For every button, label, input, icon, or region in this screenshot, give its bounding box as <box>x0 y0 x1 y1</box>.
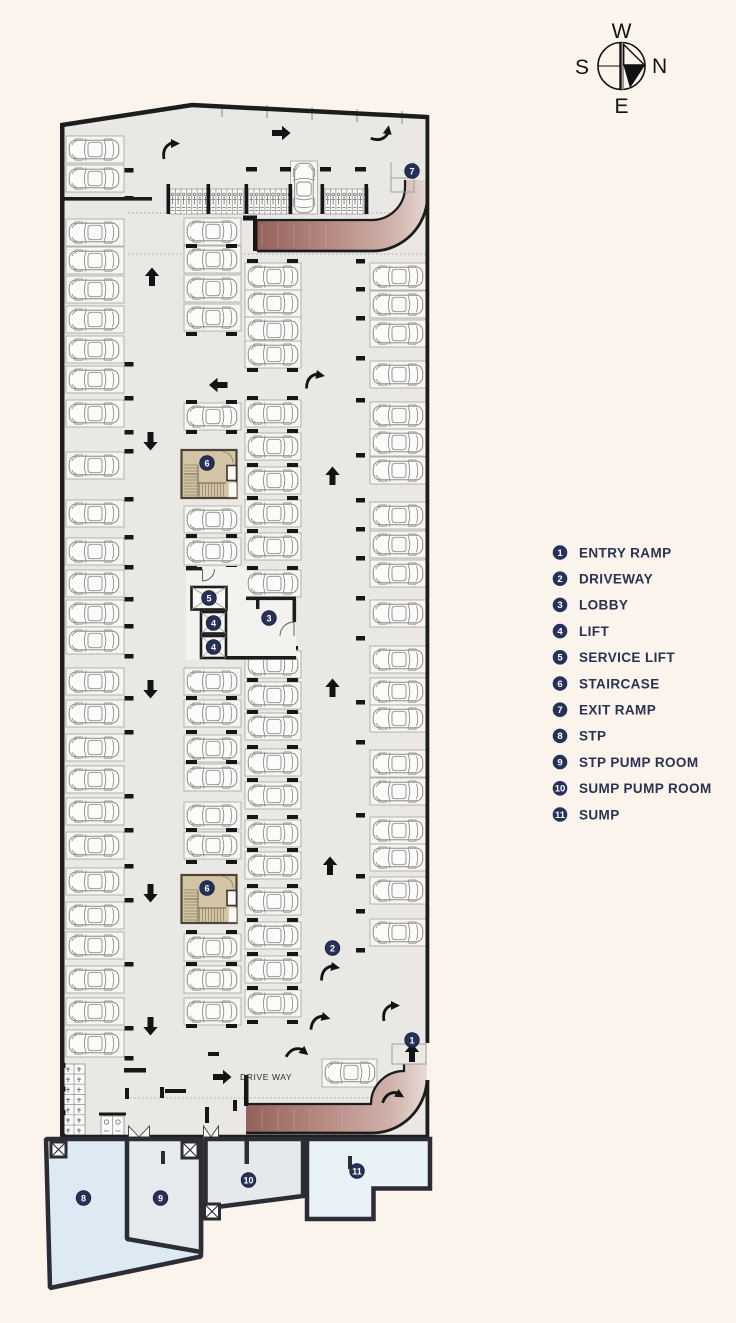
svg-text:2: 2 <box>557 574 562 585</box>
svg-text:9: 9 <box>158 1193 163 1203</box>
svg-text:6: 6 <box>557 679 562 690</box>
svg-text:STP: STP <box>579 729 606 744</box>
svg-text:4: 4 <box>557 626 563 637</box>
svg-text:STAIRCASE: STAIRCASE <box>579 676 660 691</box>
svg-text:11: 11 <box>352 1166 362 1176</box>
svg-text:W: W <box>612 20 632 43</box>
svg-text:SUMP: SUMP <box>579 807 620 822</box>
svg-text:9: 9 <box>557 757 562 768</box>
svg-text:STP PUMP ROOM: STP PUMP ROOM <box>579 755 698 770</box>
svg-text:E: E <box>614 95 628 118</box>
svg-text:8: 8 <box>81 1193 86 1203</box>
svg-text:5: 5 <box>206 593 211 603</box>
svg-text:6: 6 <box>204 458 209 468</box>
svg-text:4: 4 <box>211 618 216 628</box>
svg-text:DRIVE WAY: DRIVE WAY <box>240 1072 292 1082</box>
svg-text:6: 6 <box>204 883 209 893</box>
svg-text:LOBBY: LOBBY <box>579 598 628 613</box>
svg-text:EXIT RAMP: EXIT RAMP <box>579 703 656 718</box>
svg-text:N: N <box>652 55 667 78</box>
svg-text:ENTRY RAMP: ENTRY RAMP <box>579 545 672 560</box>
svg-text:10: 10 <box>555 784 566 795</box>
svg-text:7: 7 <box>557 705 562 716</box>
svg-text:7: 7 <box>409 166 414 176</box>
svg-text:5: 5 <box>557 653 563 664</box>
svg-text:1: 1 <box>557 548 563 559</box>
svg-text:SUMP PUMP ROOM: SUMP PUMP ROOM <box>579 781 712 796</box>
svg-text:1: 1 <box>409 1035 414 1045</box>
svg-text:3: 3 <box>266 613 271 623</box>
svg-text:10: 10 <box>243 1175 253 1185</box>
svg-text:11: 11 <box>555 810 566 821</box>
svg-text:4: 4 <box>211 642 216 652</box>
svg-text:SERVICE LIFT: SERVICE LIFT <box>579 650 675 665</box>
svg-text:LIFT: LIFT <box>579 624 609 639</box>
svg-text:S: S <box>575 56 589 79</box>
svg-text:8: 8 <box>557 731 562 742</box>
svg-text:3: 3 <box>557 600 562 611</box>
svg-text:2: 2 <box>330 943 335 953</box>
svg-text:DRIVEWAY: DRIVEWAY <box>579 572 653 587</box>
